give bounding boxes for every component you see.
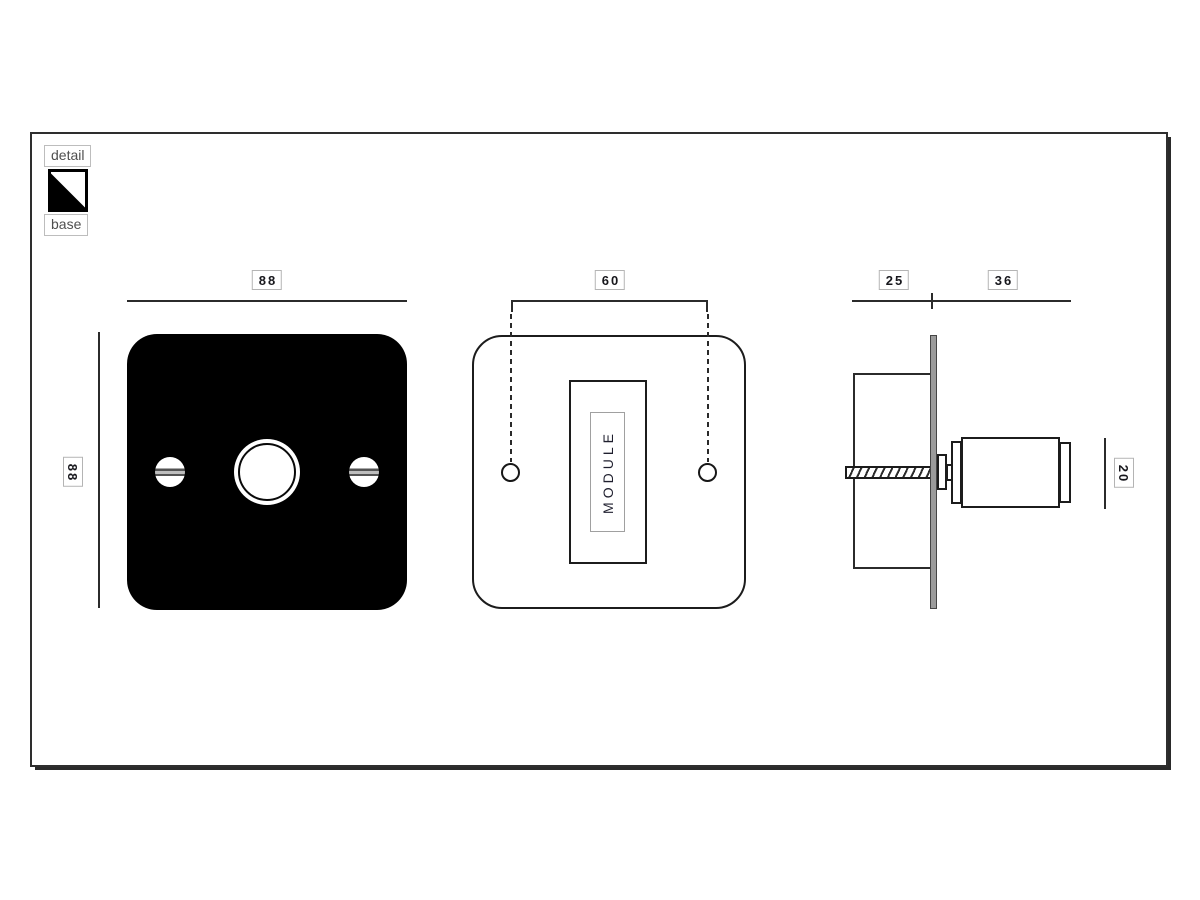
threaded-screw-rod — [845, 466, 933, 479]
drawing-frame: detail base 88 88 — [30, 132, 1168, 767]
dim-front-height-line — [98, 332, 100, 608]
dim-hole-spacing-label: 60 — [595, 270, 625, 290]
dim-front-width-label: 88 — [252, 270, 282, 290]
dim-hole-spacing-line — [511, 300, 708, 302]
dim-front-height-label: 88 — [63, 457, 83, 487]
dimmer-knob-ring — [238, 443, 296, 501]
projection-line-left — [510, 314, 512, 462]
legend-base-label: base — [44, 214, 88, 236]
dim-knob-projection-label: 36 — [988, 270, 1018, 290]
dim-depth-line — [852, 300, 1071, 302]
dim-hole-spacing-tick-left — [511, 300, 513, 312]
wall-plate-section — [930, 335, 937, 609]
screw-right-icon — [349, 457, 379, 487]
spec-sheet-canvas: detail base 88 88 — [0, 0, 1200, 900]
dim-depth-mid-tick — [931, 293, 933, 309]
dim-knob-height-label: 20 — [1114, 458, 1134, 488]
screw-hole-right — [698, 463, 717, 482]
dimmer-knob — [234, 439, 300, 505]
knob-collar-right — [1059, 442, 1071, 503]
projection-line-right — [707, 314, 709, 462]
dim-knob-height-line — [1104, 438, 1106, 509]
legend-detail-label: detail — [44, 145, 91, 167]
dim-front-width-line — [127, 300, 407, 302]
module-label-box: MODULE — [590, 412, 625, 532]
dim-box-depth-label: 25 — [879, 270, 909, 290]
dim-hole-spacing-tick-right — [706, 300, 708, 312]
front-plate — [127, 334, 407, 610]
screw-left-icon — [155, 457, 185, 487]
screw-hole-left — [501, 463, 520, 482]
legend-color-swatch-icon — [48, 169, 88, 212]
module-label-text: MODULE — [600, 430, 616, 514]
knob-body-side — [961, 437, 1060, 508]
